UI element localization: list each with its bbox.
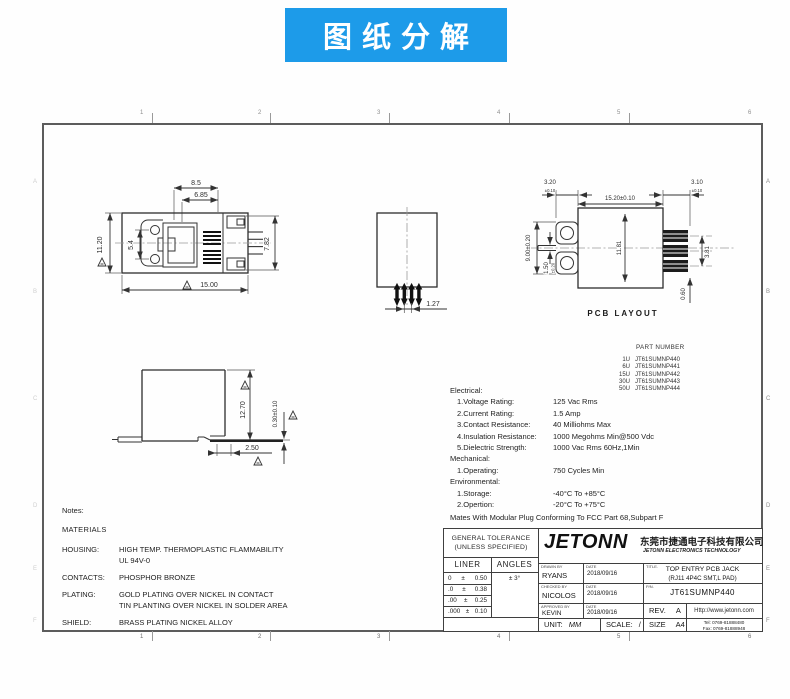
company-name-cn: 东莞市捷通电子科技有限公司 xyxy=(640,534,764,548)
zone-col-label: 4 xyxy=(497,634,500,640)
drawn-date-value: 2018/09/16 xyxy=(583,570,643,577)
part-number-plating: 1U xyxy=(596,357,630,364)
part-number-value: JT61SUMNP441 xyxy=(635,364,680,371)
tel-value: Tel: 0769-81888480 xyxy=(704,620,745,625)
dim-pad-height: 0.60 xyxy=(681,288,687,300)
spec-row: 1.Voltage Rating:125 Vac Rms xyxy=(450,396,762,407)
dim-top-right-height: 7.82 xyxy=(264,237,271,251)
mechanical-title: Mechanical: xyxy=(450,453,762,464)
zone-col-label: 1 xyxy=(140,634,143,640)
spec-label: 1.Voltage Rating: xyxy=(457,396,553,407)
title-block: GENERAL TOLERANCE (UNLESS SPECIFIED) LIN… xyxy=(443,528,763,632)
note-row: HOUSING: HIGH TEMP. THERMOPLASTIC FLAMMA… xyxy=(62,544,402,566)
part-number-row: 15U JT61SUMNP442 xyxy=(596,372,716,379)
top-view-drawing: 8.5 6.85 11.20 xyxy=(85,168,300,318)
part-number-row: 6U JT61SUMNP441 xyxy=(596,364,716,371)
zone-col-label: 1 xyxy=(140,110,143,116)
dim-pad-span: 9.00±0.20 xyxy=(526,234,532,261)
zone-row-label: B xyxy=(33,289,37,295)
part-number-value: JT61SUMNP442 xyxy=(635,372,680,379)
pn-value: JT61SUMNP440 xyxy=(643,583,762,597)
spec-value: 1000 Vac Rms 60Hz,1Min xyxy=(553,442,640,453)
zone-tick xyxy=(152,113,153,123)
checked-date-value: 2018/09/16 xyxy=(583,590,643,597)
note-label: CONTACTS: xyxy=(62,572,119,583)
zone-col-label: 2 xyxy=(258,110,261,116)
zone-col-label: 5 xyxy=(617,634,620,640)
note-label: HOUSING: xyxy=(62,544,119,566)
approved-date-value: 2018/09/16 xyxy=(583,610,643,616)
zone-col-label: 3 xyxy=(377,110,380,116)
note-label: SHIELD: xyxy=(62,617,119,628)
tol-slot: ±0.20 xyxy=(551,262,556,273)
note-value: HIGH TEMP. THERMOPLASTIC FLAMMABILITYUL … xyxy=(119,544,284,566)
scale-cell: SCALE: / xyxy=(600,618,649,631)
spec-label: 2.Current Rating: xyxy=(457,408,553,419)
drawing-title-line1: TOP ENTRY PCB JACK xyxy=(666,566,740,573)
note-value: BRASS PLATING NICKEL ALLOY xyxy=(119,617,233,628)
note-row: SHIELD: BRASS PLATING NICKEL ALLOY xyxy=(62,617,402,628)
dim-left-pad: 3.20 xyxy=(544,180,556,186)
zone-row-label: E xyxy=(766,566,770,572)
rev-value: A xyxy=(676,606,681,615)
part-number-plating: 6U xyxy=(596,364,630,371)
note-value: GOLD PLATING OVER NICKEL IN CONTACTTIN P… xyxy=(119,589,288,611)
zone-row-label: A xyxy=(33,179,37,185)
spec-row: 4.Insulation Resistance:1000 Megohms Min… xyxy=(450,431,762,442)
mating-note: Mates With Modular Plug Conforming To FC… xyxy=(450,512,762,523)
zone-tick xyxy=(629,631,630,641)
materials-title: MATERIALS xyxy=(62,525,402,534)
spec-row: 1.Operating:750 Cycles Min xyxy=(450,465,762,476)
notes-block: Notes: MATERIALS HOUSING: HIGH TEMP. THE… xyxy=(62,506,402,634)
zone-row-label: F xyxy=(766,618,770,624)
page-title: 图纸分解 xyxy=(313,14,479,56)
spec-row: 3.Contact Resistance:40 Milliohms Max xyxy=(450,419,762,430)
zone-tick xyxy=(389,113,390,123)
dim-right-pad: 3.10 xyxy=(691,180,703,186)
zone-col-label: 6 xyxy=(748,634,751,640)
dim-standoff: 0.30±0.10 xyxy=(273,400,279,427)
checked-by-cell: CHECKED BY NICOLOS xyxy=(538,583,583,603)
environmental-title: Environmental: xyxy=(450,476,762,487)
spec-label: 4.Insulation Resistance: xyxy=(457,431,553,442)
title-cell: TITLE. TOP ENTRY PCB JACK (RJ11 4P4C SMT… xyxy=(643,563,762,583)
drawn-by-value: RYANS xyxy=(538,570,583,580)
tolerance-row: .00±0.25 xyxy=(444,595,491,606)
unit-value: MM xyxy=(569,620,582,629)
angle-tolerance: ± 3° xyxy=(491,572,538,584)
dim-top-total: 15.00 xyxy=(200,282,218,289)
zone-row-label: C xyxy=(33,396,37,402)
note-label: PLATING: xyxy=(62,589,119,611)
part-number-value: JT61SUMNP440 xyxy=(635,357,680,364)
dim-pcb-width: 15.20±0.10 xyxy=(605,196,636,202)
zone-col-label: 6 xyxy=(748,110,751,116)
checked-date-cell: DATE 2018/09/16 xyxy=(583,583,643,603)
electrical-title: Electrical: xyxy=(450,385,762,396)
part-number-row: 1U JT61SUMNP440 xyxy=(596,357,716,364)
spec-value: 1.5 Amp xyxy=(553,408,581,419)
zone-tick xyxy=(629,113,630,123)
tolerance-row: 0±0.50 xyxy=(444,572,491,584)
size-value: A4 xyxy=(676,620,685,629)
jetonn-logo: JETONN xyxy=(544,531,628,554)
angles-header: ANGLES xyxy=(491,557,538,572)
front-view-drawing: 1.27 xyxy=(355,185,485,325)
checked-by-value: NICOLOS xyxy=(538,590,583,600)
page-title-banner: 图纸分解 xyxy=(285,8,507,62)
spec-label: 5.Dielectric Strength: xyxy=(457,442,553,453)
pcb-layout-drawing: 3.20 ±0.10 15.20±0.10 3.10 ±0.10 9.00±0.… xyxy=(520,168,770,328)
spec-row: 2.Opertion:-20°C To +75°C xyxy=(450,499,762,510)
zone-tick xyxy=(509,631,510,641)
unit-cell: UNIT: MM xyxy=(538,618,606,631)
approved-by-value: KEVIN xyxy=(538,610,583,617)
spec-label: 2.Opertion: xyxy=(457,499,553,510)
fax-value: Fax: 0769-81888948 xyxy=(703,626,745,631)
rev-label: REV. xyxy=(649,606,666,615)
note-row: PLATING: GOLD PLATING OVER NICKEL IN CON… xyxy=(62,589,402,611)
drawn-date-cell: DATE 2018/09/16 xyxy=(583,563,643,583)
tol-right-pad: ±0.10 xyxy=(692,188,703,193)
dim-lead: 2.50 xyxy=(245,445,259,452)
tolerance-row: .000±0.10 xyxy=(444,606,491,617)
pn-cell: P/N. JT61SUMNP440 xyxy=(643,583,762,603)
approved-date-cell: DATE 2018/09/16 xyxy=(583,603,643,618)
zone-row-label: D xyxy=(766,503,770,509)
scale-label: SCALE: xyxy=(606,620,633,629)
zone-tick xyxy=(509,113,510,123)
size-cell: SIZE A4 xyxy=(643,618,692,631)
zone-col-label: 2 xyxy=(258,634,261,640)
dim-pin-span: 3.81 xyxy=(705,246,711,258)
spec-value: 40 Milliohms Max xyxy=(553,419,611,430)
spec-row: 1.Storage:-40°C To +85°C xyxy=(450,488,762,499)
dim-side-height: 12.70 xyxy=(240,401,247,419)
dim-slot: 1.50 xyxy=(544,262,550,274)
pn-label: P/N. xyxy=(643,583,654,590)
spec-row: 2.Current Rating:1.5 Amp xyxy=(450,408,762,419)
zone-col-label: 5 xyxy=(617,110,620,116)
tb-line xyxy=(444,617,538,618)
telfax-cell: Tel: 0769-81888480 Fax: 0769-81888948 xyxy=(686,618,762,633)
rev-cell: REV. A xyxy=(643,603,692,618)
dim-top-width-inner: 6.85 xyxy=(194,192,208,199)
zone-col-label: 4 xyxy=(497,110,500,116)
scale-value: / xyxy=(639,620,641,629)
size-label: SIZE xyxy=(649,620,666,629)
spec-value: 750 Cycles Min xyxy=(553,465,604,476)
side-view-drawing: 12.70 0.30±0.10 2.50 xyxy=(100,352,310,482)
dim-top-width: 8.5 xyxy=(191,180,201,187)
company-name-en: JETONN ELECTRONICS TECHNOLOGY xyxy=(643,548,741,554)
dim-pcb-height: 11.81 xyxy=(617,240,623,255)
liner-header: LINER xyxy=(444,557,491,572)
zone-row-label: E xyxy=(33,566,37,572)
drawing-breakdown-page: 图纸分解 1 2 3 4 5 6 1 2 3 4 5 6 A B C D E F… xyxy=(0,0,790,699)
specifications-block: Electrical: 1.Voltage Rating:125 Vac Rms… xyxy=(450,385,762,524)
spec-label: 1.Storage: xyxy=(457,488,553,499)
spec-value: -20°C To +75°C xyxy=(553,499,605,510)
drawn-by-cell: DRAWN BY RYANS xyxy=(538,563,583,583)
spec-value: 125 Vac Rms xyxy=(553,396,597,407)
notes-title: Notes: xyxy=(62,506,402,515)
dim-top-height: 11.20 xyxy=(97,236,104,253)
drawing-title-line2: (RJ11 4P4C SMT,L PAD) xyxy=(668,575,736,582)
zone-row-label: C xyxy=(766,396,770,402)
zone-col-label: 3 xyxy=(377,634,380,640)
note-value: PHOSPHOR BRONZE xyxy=(119,572,195,583)
pcb-layout-label: PCB LAYOUT xyxy=(587,309,658,318)
tolerance-row: .0±0.38 xyxy=(444,584,491,595)
part-number-title: PART NUMBER xyxy=(636,344,716,351)
part-number-plating: 15U xyxy=(596,372,630,379)
dim-pin-pitch: 1.27 xyxy=(426,301,440,308)
note-row: CONTACTS: PHOSPHOR BRONZE xyxy=(62,572,402,583)
spec-value: -40°C To +85°C xyxy=(553,488,605,499)
approved-by-cell: APPROVED BY KEVIN xyxy=(538,603,583,618)
spec-value: 1000 Megohms Min@500 Vdc xyxy=(553,431,654,442)
spec-row: 5.Dielectric Strength:1000 Vac Rms 60Hz,… xyxy=(450,442,762,453)
unit-label: UNIT: xyxy=(544,620,563,629)
spec-label: 3.Contact Resistance: xyxy=(457,419,553,430)
spec-label: 1.Operating: xyxy=(457,465,553,476)
zone-row-label: D xyxy=(33,503,37,509)
tol-left-pad: ±0.10 xyxy=(545,188,556,193)
website-cell: Http://www.jetonn.com xyxy=(686,603,762,618)
zone-row-label: F xyxy=(33,618,37,624)
title-label: TITLE. xyxy=(643,563,658,570)
dim-top-holes: 5.4 xyxy=(128,240,135,250)
zone-tick xyxy=(270,113,271,123)
